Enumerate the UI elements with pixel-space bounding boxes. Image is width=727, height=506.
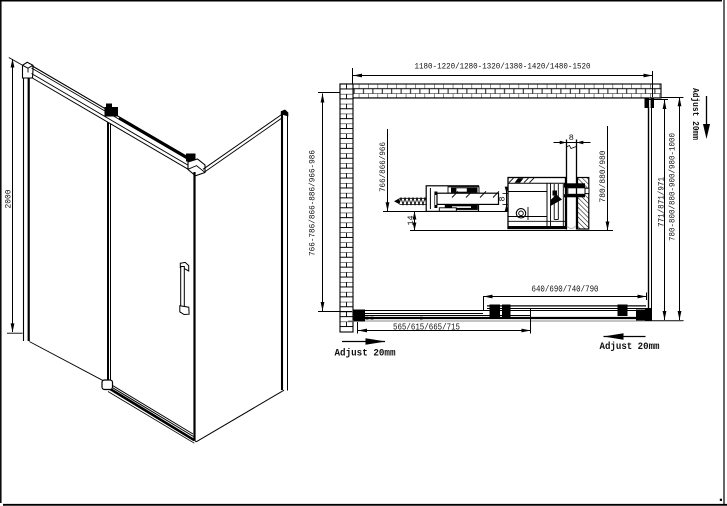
svg-text:2000: 2000 [4, 190, 14, 209]
svg-text:8: 8 [498, 196, 508, 201]
svg-text:771/871/971: 771/871/971 [657, 177, 667, 227]
svg-text:1180-1220/1280-1320/1380-1420/: 1180-1220/1280-1320/1380-1420/1480-1520 [415, 62, 591, 72]
svg-text:565/615/665/715: 565/615/665/715 [393, 323, 460, 333]
svg-text:766-786/866-886/966-986: 766-786/866-886/966-986 [308, 150, 318, 256]
svg-text:780-800/880-900/980-1000: 780-800/880-900/980-1000 [668, 133, 678, 241]
svg-text:Adjust 20mm: Adjust 20mm [600, 341, 660, 353]
svg-text:766/866/966: 766/866/966 [378, 142, 388, 192]
svg-text:Adjust 20mm: Adjust 20mm [335, 348, 396, 360]
svg-text:14: 14 [406, 216, 416, 226]
svg-text:8: 8 [569, 133, 574, 143]
svg-text:Adjust 20mm: Adjust 20mm [690, 88, 701, 140]
svg-text:780/880/980: 780/880/980 [598, 151, 608, 203]
svg-text:640/690/740/790: 640/690/740/790 [532, 285, 599, 295]
